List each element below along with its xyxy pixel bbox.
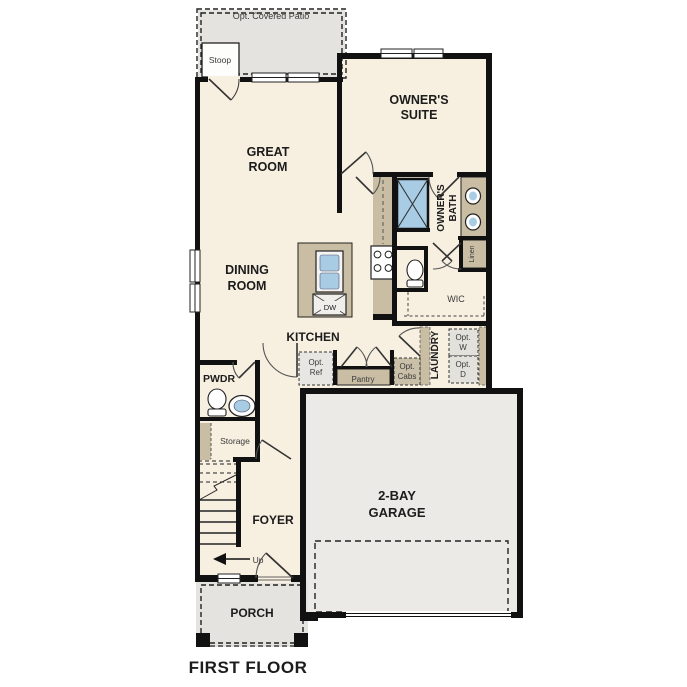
linen-label: Linen <box>469 245 476 262</box>
svg-text:BATH: BATH <box>448 194 459 221</box>
svg-text:W: W <box>459 343 467 352</box>
opt-dryer-label: Opt. <box>455 360 470 369</box>
laundry-label: LAUNDRY <box>430 330 441 379</box>
porch-post <box>294 633 308 647</box>
svg-text:GARAGE: GARAGE <box>368 505 425 520</box>
pantry-label: Pantry <box>351 375 374 384</box>
kitchen-label: KITCHEN <box>286 330 339 344</box>
svg-text:SUITE: SUITE <box>401 108 438 122</box>
svg-text:D: D <box>460 370 466 379</box>
stoop-label: Stoop <box>209 55 231 65</box>
plan-title: FIRST FLOOR <box>189 658 308 677</box>
porch-post <box>196 633 210 647</box>
storage-label: Storage <box>220 436 250 446</box>
great-room-label: GREAT <box>247 145 290 159</box>
svg-text:ROOM: ROOM <box>228 279 267 293</box>
opt-cabs-label: Opt. <box>399 362 414 371</box>
dw-label: DW <box>324 303 337 312</box>
garage-floor <box>304 392 519 614</box>
svg-text:Cabs: Cabs <box>398 372 417 381</box>
dining-room-label: DINING <box>225 263 269 277</box>
opt-washer-label: Opt. <box>455 333 470 342</box>
toilet <box>407 260 423 287</box>
laundry-cabinet <box>420 327 430 385</box>
patio-label: Opt. Covered Patio <box>233 11 310 21</box>
pwdr-label: PWDR <box>203 373 235 385</box>
pwdr-sink <box>229 396 255 417</box>
toilet <box>208 389 226 416</box>
up-label: Up <box>253 555 264 565</box>
floor-plan-svg: Opt. Covered Patio Stoop GREAT ROOM OWNE… <box>0 0 687 687</box>
opt-ref-label: Opt. <box>308 358 323 367</box>
porch-label: PORCH <box>230 606 273 620</box>
floor-plan-image: Opt. Covered Patio Stoop GREAT ROOM OWNE… <box>0 0 687 687</box>
garage-door <box>346 611 511 618</box>
svg-text:Ref: Ref <box>310 368 323 377</box>
owners-suite-label: OWNER'S <box>389 93 448 107</box>
wic-label: WIC <box>447 294 465 304</box>
owners-bath-label: OWNER'S <box>436 184 447 232</box>
foyer-label: FOYER <box>252 513 294 527</box>
garage-label: 2-BAY <box>378 488 416 503</box>
svg-text:ROOM: ROOM <box>249 160 288 174</box>
